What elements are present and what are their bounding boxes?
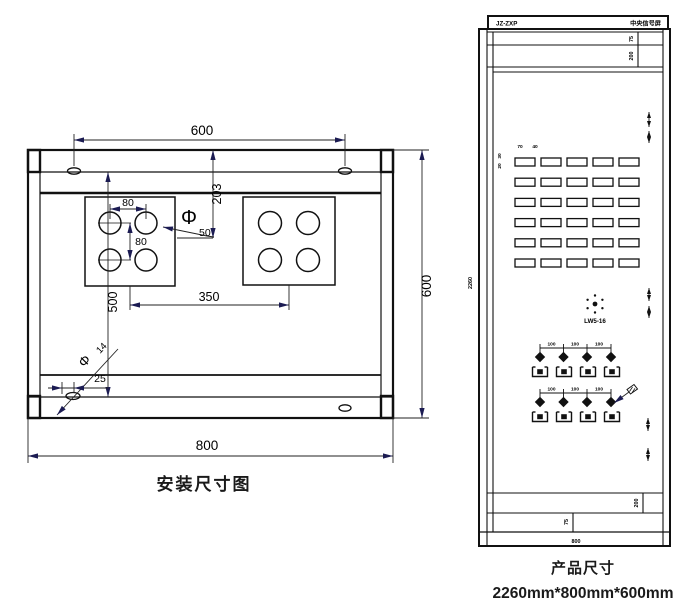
indicator-window bbox=[515, 239, 535, 247]
dim-label: 500 bbox=[106, 292, 120, 313]
hatched-leader-arrow bbox=[614, 385, 638, 404]
indicator-window bbox=[619, 158, 639, 166]
dim-label: 800 bbox=[196, 438, 219, 453]
leader-slot-diameter: Φ 14 bbox=[57, 341, 118, 415]
indicator-window bbox=[515, 178, 535, 186]
cable-hole bbox=[297, 212, 320, 235]
indicator-window bbox=[619, 259, 639, 267]
lamp-pitch-label: 100 bbox=[547, 342, 555, 348]
dim-label: 50 bbox=[199, 227, 211, 239]
drawing-svg: 600 203 80 80 Φ 50 500 bbox=[0, 0, 699, 612]
dim-right-height: 600 bbox=[393, 150, 434, 418]
cable-hole bbox=[135, 249, 157, 271]
signal-lamp-diamond bbox=[582, 397, 592, 407]
dim-label: 14 bbox=[94, 341, 109, 356]
signal-lamp-diamond bbox=[535, 397, 545, 407]
indicator-window bbox=[515, 198, 535, 206]
signal-lamp-diamond bbox=[582, 352, 592, 362]
nameplate-model: JZ-ZXP bbox=[496, 21, 517, 28]
dim-cabinet-width: 800 bbox=[572, 539, 581, 545]
indicator-window bbox=[593, 198, 613, 206]
window-width: 40 bbox=[532, 144, 538, 150]
lamp-button-rows: 100100100100100100 bbox=[533, 342, 620, 422]
dim-top-panel: 200 bbox=[629, 52, 635, 61]
dim-left-height: 500 bbox=[106, 172, 120, 397]
pushbutton-square bbox=[561, 369, 567, 374]
indicator-window-grid bbox=[515, 158, 639, 267]
mounting-slot bbox=[339, 168, 352, 174]
signal-lamp-diamond bbox=[606, 352, 616, 362]
corner-cap bbox=[381, 150, 393, 172]
indicator-window bbox=[515, 259, 535, 267]
lamp-pitch-label: 100 bbox=[595, 387, 603, 393]
indicator-window bbox=[541, 198, 561, 206]
switch-center-dot bbox=[593, 302, 598, 307]
mounting-slot bbox=[66, 393, 80, 400]
diameter-symbol: Φ bbox=[181, 207, 197, 229]
product-drawing: JZ-ZXP 中央信号屏 75 200 200 75 800 bbox=[468, 16, 673, 602]
indicator-window bbox=[541, 239, 561, 247]
pushbutton-square bbox=[609, 369, 615, 374]
dim-hole-pitch-v: 80 bbox=[130, 223, 147, 260]
gland-plate-right bbox=[243, 197, 335, 285]
indicator-window bbox=[619, 239, 639, 247]
signal-lamp-diamond bbox=[558, 352, 568, 362]
lamp-pitch-label: 100 bbox=[571, 387, 579, 393]
dim-cabinet-height: 2260 bbox=[468, 277, 474, 289]
indicator-window bbox=[593, 259, 613, 267]
pushbutton-square bbox=[585, 414, 591, 419]
lamp-pitch-label: 100 bbox=[547, 387, 555, 393]
diameter-symbol: Φ bbox=[75, 352, 93, 370]
indicator-window bbox=[541, 158, 561, 166]
dim-label: 600 bbox=[191, 123, 214, 138]
corner-cap bbox=[28, 150, 40, 172]
nameplate-title: 中央信号屏 bbox=[630, 20, 661, 28]
installation-drawing: 600 203 80 80 Φ 50 500 bbox=[28, 123, 434, 494]
indicator-window bbox=[515, 219, 535, 227]
product-caption: 产品尺寸 bbox=[551, 559, 615, 577]
engineering-drawing-sheet: 600 203 80 80 Φ 50 500 bbox=[0, 0, 699, 612]
dim-hole-pitch-h: 80 bbox=[110, 197, 146, 219]
lamp-pitch-label: 100 bbox=[595, 342, 603, 348]
cable-hole bbox=[297, 249, 320, 272]
signal-lamp-diamond bbox=[558, 397, 568, 407]
indicator-window bbox=[515, 158, 535, 166]
indicator-window bbox=[541, 219, 561, 227]
dim-label: 350 bbox=[199, 290, 220, 304]
mounting-slot bbox=[339, 405, 351, 411]
dim-bottom-width: 800 bbox=[28, 418, 393, 463]
indicator-window bbox=[593, 158, 613, 166]
installation-caption: 安装尺寸图 bbox=[157, 474, 252, 494]
signal-lamp-diamond bbox=[535, 352, 545, 362]
product-overall-size: 2260mm*800mm*600mm bbox=[493, 585, 674, 602]
switch-model-label: LW5-16 bbox=[584, 318, 606, 325]
indicator-window bbox=[567, 158, 587, 166]
indicator-window bbox=[541, 178, 561, 186]
pushbutton-square bbox=[537, 369, 543, 374]
indicator-window bbox=[619, 198, 639, 206]
indicator-window bbox=[593, 239, 613, 247]
indicator-window bbox=[567, 198, 587, 206]
cable-hole bbox=[259, 249, 282, 272]
dim-label: 600 bbox=[419, 275, 434, 298]
indicator-window bbox=[567, 178, 587, 186]
indicator-window bbox=[567, 239, 587, 247]
pushbutton-square bbox=[609, 414, 615, 419]
corner-cap bbox=[381, 396, 393, 418]
pushbutton-square bbox=[537, 414, 543, 419]
lamp-pitch-label: 100 bbox=[571, 342, 579, 348]
window-height: 20 bbox=[497, 163, 503, 169]
dim-label: 25 bbox=[94, 373, 106, 385]
dim-label: 80 bbox=[122, 197, 134, 209]
nameplate-bar: JZ-ZXP 中央信号屏 bbox=[488, 16, 668, 29]
dim-bottom-panel: 200 bbox=[634, 499, 640, 508]
indicator-window bbox=[567, 219, 587, 227]
mini-dim-arrows bbox=[648, 112, 649, 461]
cabinet-body: 75 200 200 75 800 2260 bbox=[468, 29, 670, 546]
pushbutton-square bbox=[585, 369, 591, 374]
indicator-window bbox=[619, 219, 639, 227]
indicator-window bbox=[619, 178, 639, 186]
dim-label: 203 bbox=[210, 184, 224, 205]
indicator-window bbox=[541, 259, 561, 267]
indicator-window bbox=[593, 219, 613, 227]
indicator-window bbox=[593, 178, 613, 186]
dim-top-width: 600 bbox=[74, 123, 345, 166]
window-pitch-v: 30 bbox=[497, 153, 503, 159]
dim-bottom-trim: 75 bbox=[564, 519, 570, 525]
indicator-window bbox=[567, 259, 587, 267]
dim-plate-pitch: 350 bbox=[130, 285, 289, 310]
pushbutton-square bbox=[561, 414, 567, 419]
leader-hole-diameter: Φ 50 bbox=[163, 207, 214, 239]
dim-label: 80 bbox=[135, 236, 147, 248]
window-pitch-h: 70 bbox=[517, 144, 523, 150]
dim-top-trim: 75 bbox=[629, 36, 635, 42]
mounting-slot bbox=[68, 168, 81, 174]
window-dim-labels: 70 40 30 20 bbox=[497, 144, 538, 169]
corner-cap bbox=[28, 396, 40, 418]
control-switch: LW5-16 bbox=[584, 294, 606, 325]
cable-hole bbox=[259, 212, 282, 235]
dim-slot-offset: 25 bbox=[48, 373, 108, 394]
